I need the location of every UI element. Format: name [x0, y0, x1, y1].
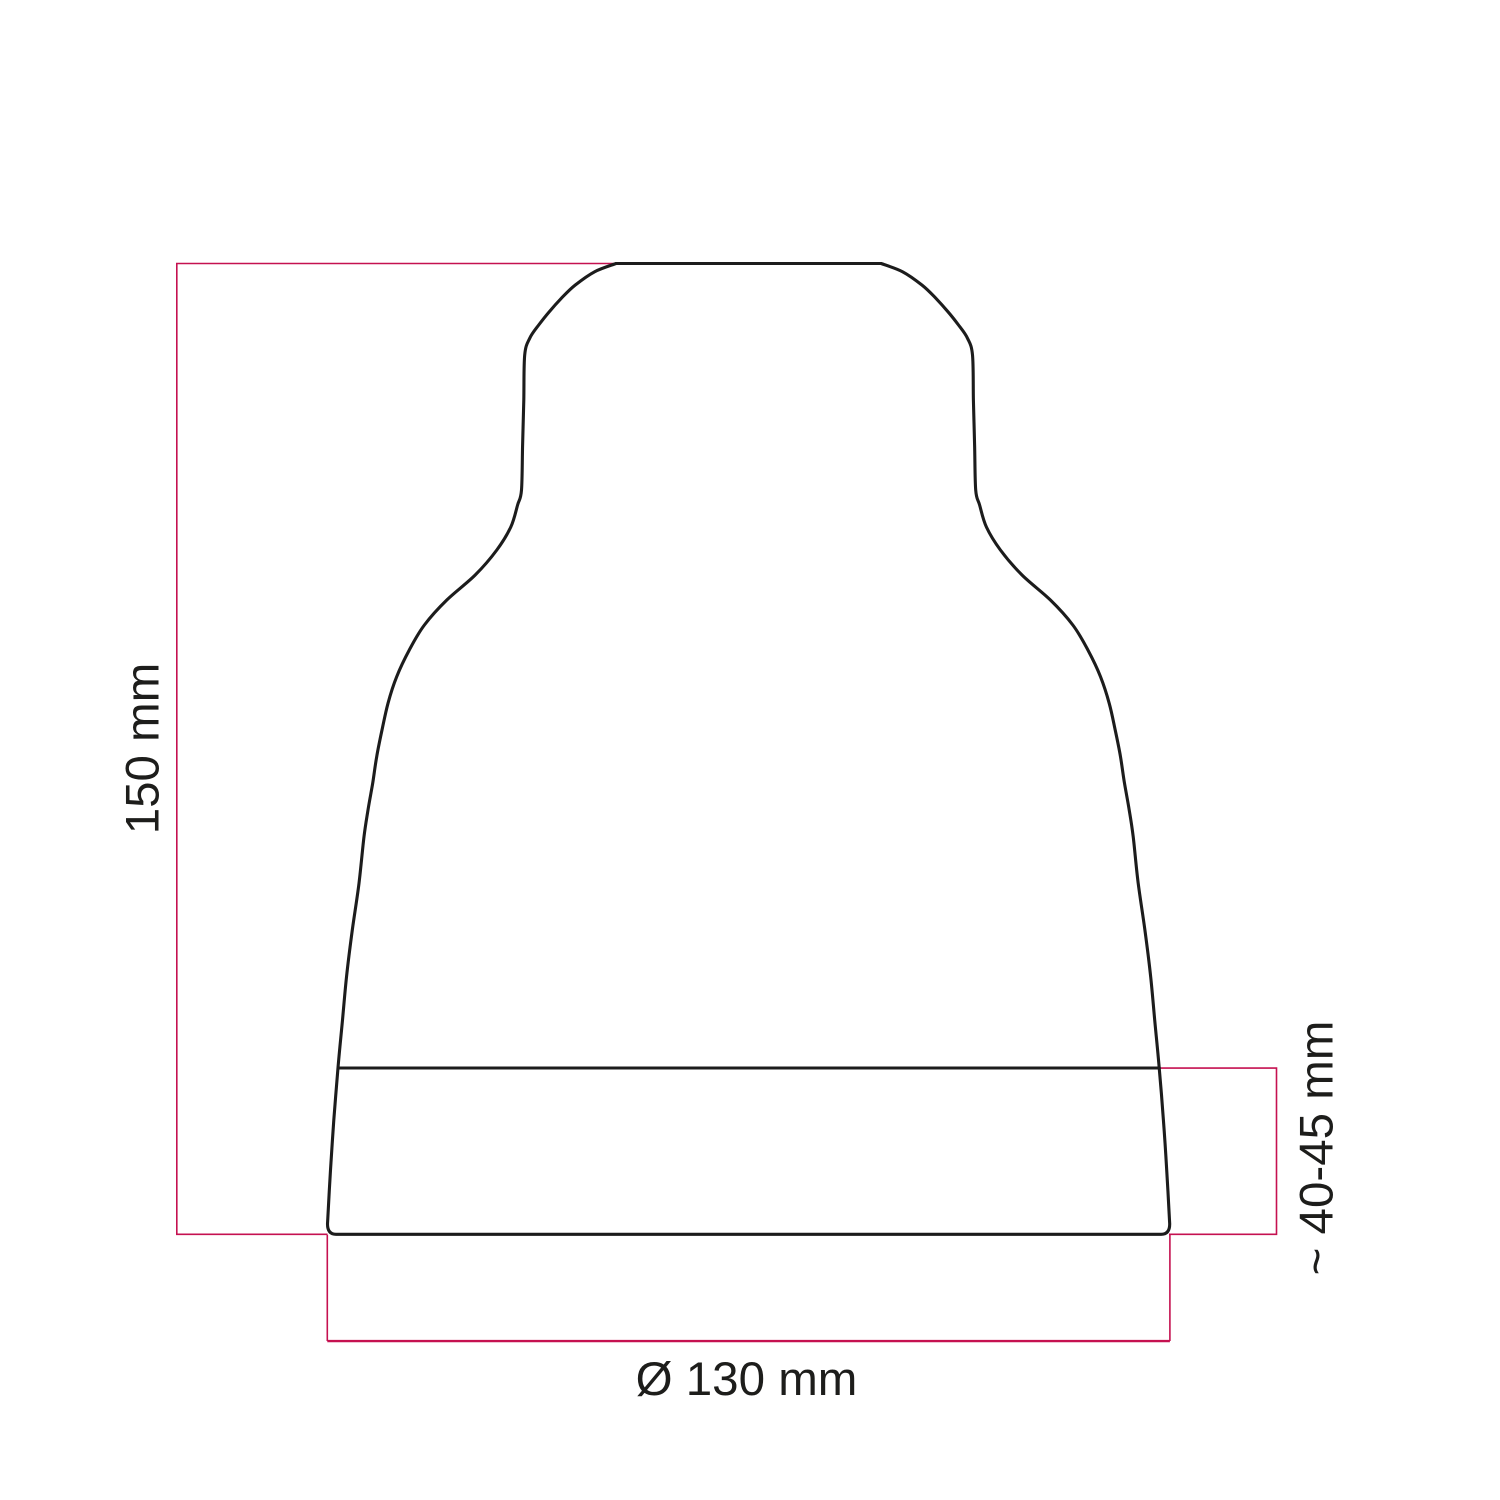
svg-text:~ 40-45 mm: ~ 40-45 mm: [1291, 1021, 1344, 1276]
svg-text:Ø 130 mm: Ø 130 mm: [636, 1353, 858, 1406]
svg-text:150 mm: 150 mm: [117, 663, 170, 835]
